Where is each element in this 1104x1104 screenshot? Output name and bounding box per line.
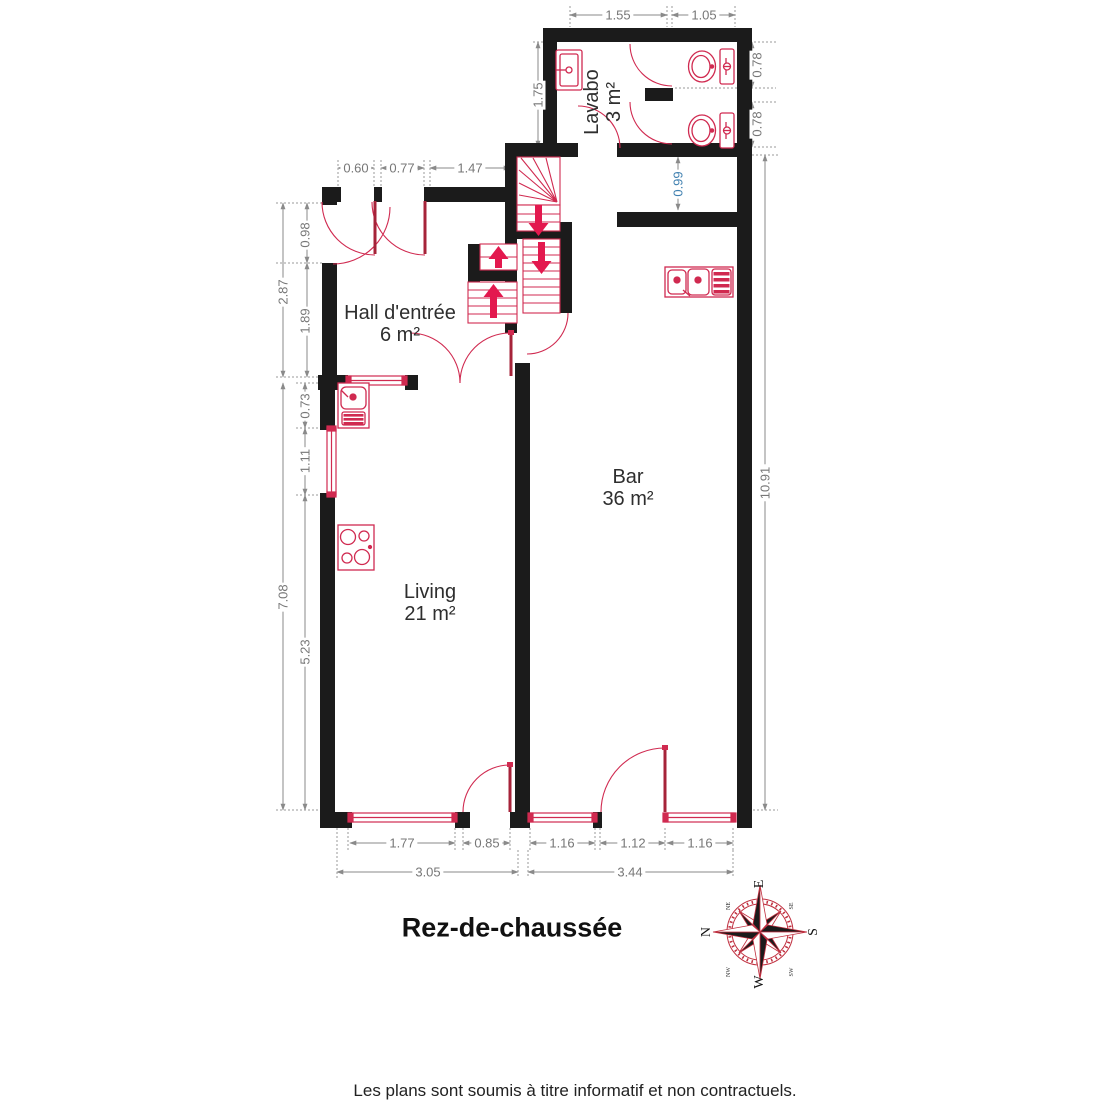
dim-wc1-height: 0.78 xyxy=(750,50,765,79)
dim-hall-1: 0.60 xyxy=(340,161,371,176)
window-bar-bottom-left xyxy=(528,813,597,822)
compass-southwest-label: SW xyxy=(789,968,795,977)
dim-left-total-bottom: 7.08 xyxy=(276,582,291,611)
compass-south-label: S xyxy=(806,928,822,936)
room-label-hall: Hall d'entrée 6 m² xyxy=(344,302,456,346)
cooktop-icon xyxy=(338,525,374,570)
door-leaf-caps xyxy=(507,330,668,767)
toilet-icon xyxy=(689,49,735,84)
toilet-icon xyxy=(689,113,735,148)
room-area: 36 m² xyxy=(602,488,653,510)
door-swings xyxy=(322,44,672,812)
kitchenette-sink-icon xyxy=(338,383,369,428)
bar-sink-icon xyxy=(665,267,733,297)
compass-northwest-label: NW xyxy=(726,967,732,977)
room-name: Bar xyxy=(602,466,653,488)
dim-bottom-w2: 1.16 xyxy=(546,836,577,851)
room-label-lavabo: Lavabo 3 m² xyxy=(581,69,625,135)
dim-wc2-height: 0.78 xyxy=(750,109,765,138)
dim-passage: 0.99 xyxy=(671,169,686,198)
floorplan-page: 1.55 1.05 1.75 0.78 0.78 0.99 0.60 0.77 … xyxy=(0,0,1104,1104)
compass-north-label: N xyxy=(699,927,715,937)
dim-bottom-total-left: 3.05 xyxy=(412,865,443,880)
room-name: Hall d'entrée xyxy=(344,302,456,324)
room-label-bar: Bar 36 m² xyxy=(602,466,653,510)
room-area: 3 m² xyxy=(603,69,625,135)
dim-right-total: 10.91 xyxy=(758,465,773,502)
compass-northeast-label: NE xyxy=(726,902,732,910)
washbasin-icon xyxy=(556,50,582,90)
dim-bottom-w3: 1.16 xyxy=(684,836,715,851)
window-bar-bottom-right xyxy=(663,813,736,822)
compass-east-label: E xyxy=(752,880,768,889)
compass-rose xyxy=(713,885,807,979)
compass-west-label: W xyxy=(752,975,768,988)
dim-left-wall2: 5.23 xyxy=(298,637,313,666)
dim-bottom-total-right: 3.44 xyxy=(614,865,645,880)
windows xyxy=(327,376,736,822)
floor-title: Rez-de-chaussée xyxy=(402,913,623,944)
dim-left-total-top: 2.87 xyxy=(276,277,291,306)
room-name: Living xyxy=(404,581,456,603)
room-label-living: Living 21 m² xyxy=(404,581,456,625)
dim-entry-door: 0.98 xyxy=(298,220,313,249)
dim-bottom-w1: 1.77 xyxy=(386,836,417,851)
dim-lavabo-height: 1.75 xyxy=(531,80,546,109)
room-name: Lavabo xyxy=(581,69,603,135)
dim-top-1: 1.55 xyxy=(602,8,633,23)
dim-left-window: 1.11 xyxy=(298,447,313,475)
window-living-left xyxy=(327,426,336,497)
disclaimer-text: Les plans sont soumis à titre informatif… xyxy=(353,1081,796,1101)
walls xyxy=(318,28,752,828)
dim-left-wall: 1.89 xyxy=(298,306,313,335)
room-area: 21 m² xyxy=(404,603,456,625)
dim-left-sink: 0.73 xyxy=(298,391,313,420)
dim-top-2: 1.05 xyxy=(688,8,719,23)
dim-hall-3: 1.47 xyxy=(454,161,485,176)
window-living-bottom xyxy=(348,813,457,822)
dim-bottom-d1: 0.85 xyxy=(471,836,502,851)
dim-hall-2: 0.77 xyxy=(386,161,417,176)
dim-bottom-d2: 1.12 xyxy=(617,836,648,851)
compass-southeast-label: SE xyxy=(789,902,795,909)
room-area: 6 m² xyxy=(344,324,456,346)
